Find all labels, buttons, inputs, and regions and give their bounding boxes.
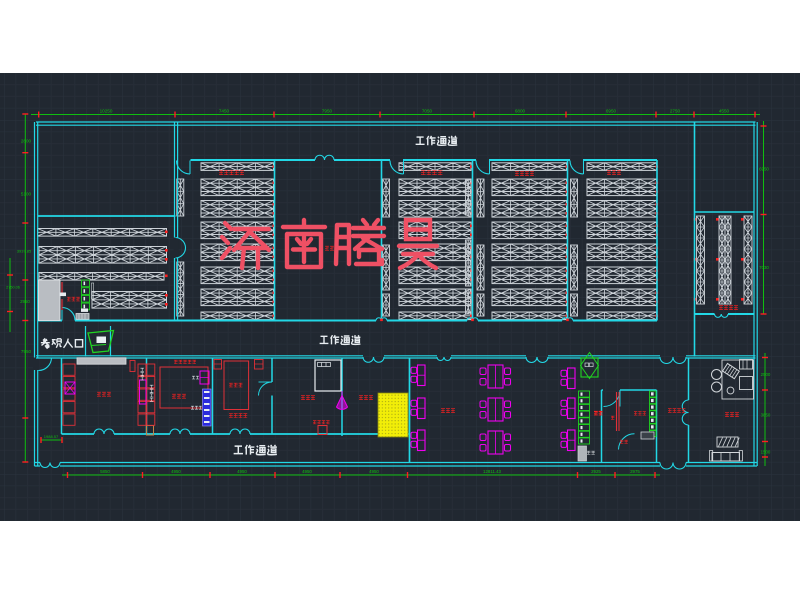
svg-text:7950: 7950	[21, 349, 32, 354]
svg-text:6950: 6950	[606, 109, 617, 114]
svg-text:4950: 4950	[171, 469, 181, 474]
svg-text:3850: 3850	[761, 413, 771, 418]
svg-text:2950: 2950	[20, 299, 30, 304]
svg-text:7450: 7450	[219, 109, 230, 114]
svg-text:2500: 2500	[761, 372, 771, 377]
svg-text:4950: 4950	[369, 469, 379, 474]
svg-text:5850: 5850	[100, 469, 110, 474]
svg-text:7050: 7050	[422, 109, 433, 114]
svg-text:4550: 4550	[719, 109, 730, 114]
svg-text:4950: 4950	[302, 469, 312, 474]
svg-text:1988.57: 1988.57	[44, 434, 59, 439]
svg-text:3937.85: 3937.85	[17, 249, 32, 254]
svg-text:2925: 2925	[591, 469, 601, 474]
svg-text:4950: 4950	[237, 469, 247, 474]
svg-text:10250: 10250	[100, 109, 113, 114]
svg-text:6950: 6950	[759, 167, 769, 172]
svg-text:12811.43: 12811.43	[483, 469, 502, 474]
svg-text:2750: 2750	[670, 109, 681, 114]
svg-text:5100: 5100	[21, 192, 32, 197]
svg-text:7950: 7950	[322, 109, 333, 114]
svg-text:1500: 1500	[761, 450, 771, 455]
svg-text:7030: 7030	[759, 265, 769, 270]
svg-text:2750.06: 2750.06	[6, 286, 20, 290]
svg-text:6800: 6800	[515, 109, 526, 114]
svg-text:2800: 2800	[21, 139, 32, 144]
svg-text:2975: 2975	[630, 469, 640, 474]
